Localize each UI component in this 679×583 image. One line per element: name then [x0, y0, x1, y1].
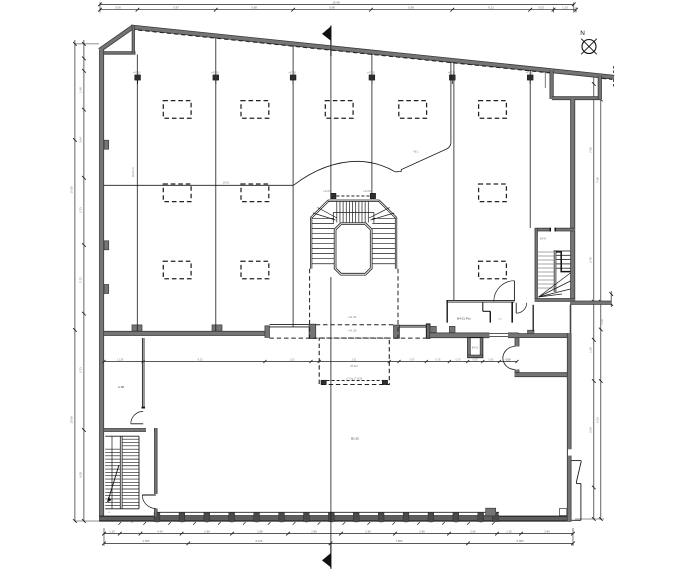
svg-text:2.70: 2.70: [589, 257, 593, 263]
svg-text:0.50: 0.50: [473, 358, 478, 361]
svg-text:+47.50: +47.50: [288, 71, 296, 74]
svg-text:45.1: 45.1: [413, 150, 419, 154]
svg-text:2.88: 2.88: [419, 529, 425, 533]
svg-text:1.38: 1.38: [600, 319, 604, 325]
svg-text:+47.50: +47.50: [367, 71, 375, 74]
svg-text:28.114: 28.114: [350, 365, 358, 368]
svg-text:1.135: 1.135: [117, 358, 124, 361]
svg-text:5.98: 5.98: [329, 6, 335, 10]
svg-text:+41.05: +41.05: [348, 315, 357, 319]
svg-text:+47.50: +47.50: [211, 71, 219, 74]
svg-text:0.97: 0.97: [410, 358, 415, 361]
svg-text:6.23: 6.23: [596, 417, 600, 423]
svg-text:17 Stg 17.6/28: 17 Stg 17.6/28: [346, 377, 363, 380]
svg-text:+47.50: +47.50: [447, 71, 455, 74]
svg-text:5.87: 5.87: [173, 6, 179, 10]
svg-text:5.73: 5.73: [79, 207, 83, 213]
svg-text:1.48: 1.48: [79, 87, 83, 93]
svg-text:6.08: 6.08: [79, 472, 83, 478]
svg-text:5.73: 5.73: [79, 277, 83, 283]
svg-text:2.88: 2.88: [204, 529, 210, 533]
svg-text:6.73: 6.73: [79, 367, 83, 373]
svg-text:5.98: 5.98: [251, 6, 257, 10]
svg-text:3.06: 3.06: [115, 6, 121, 10]
svg-text:0.56: 0.56: [506, 358, 511, 361]
svg-text:6.21: 6.21: [488, 6, 494, 10]
svg-text:2.31: 2.31: [352, 358, 357, 361]
svg-text:+43.50: +43.50: [363, 190, 371, 193]
svg-text:B4.03: B4.03: [472, 347, 479, 350]
svg-text:2.88: 2.88: [311, 529, 317, 533]
svg-text:0.55: 0.55: [489, 358, 494, 361]
svg-text:B4.01 Flur: B4.01 Flur: [457, 317, 471, 321]
svg-text:4.25: 4.25: [198, 358, 203, 361]
svg-text:0.76: 0.76: [436, 358, 441, 361]
svg-text:5.985: 5.985: [517, 539, 524, 543]
svg-text:7.98: 7.98: [596, 177, 600, 183]
svg-text:5.98: 5.98: [408, 6, 414, 10]
svg-text:17.08: 17.08: [70, 186, 74, 194]
svg-text:+41.28: +41.28: [348, 329, 357, 333]
svg-text:B4.04: B4.04: [540, 238, 547, 241]
svg-text:10.98: 10.98: [70, 416, 74, 424]
svg-text:4.44: 4.44: [157, 529, 163, 533]
svg-text:8.125: 8.125: [256, 539, 263, 543]
svg-text:15.48: 15.48: [332, 0, 340, 4]
svg-text:1.26: 1.26: [109, 529, 115, 533]
svg-text:2.88: 2.88: [257, 529, 263, 533]
svg-text:2.60: 2.60: [470, 529, 476, 533]
svg-text:0.70: 0.70: [456, 358, 461, 361]
svg-text:+43.50: +43.50: [323, 190, 331, 193]
svg-text:7.58: 7.58: [589, 147, 593, 153]
svg-text:B1.02: B1.02: [351, 437, 359, 441]
svg-text:A.08: A.08: [118, 385, 125, 389]
svg-text:28.02+21: 28.02+21: [132, 166, 135, 177]
svg-text:3.03: 3.03: [538, 6, 544, 10]
svg-text:2.96: 2.96: [589, 427, 593, 433]
svg-text:2.84: 2.84: [544, 529, 550, 533]
svg-text:+47.50: +47.50: [525, 71, 533, 74]
svg-text:2.88: 2.88: [365, 529, 371, 533]
svg-text:1.53: 1.53: [290, 358, 295, 361]
svg-text:N: N: [580, 30, 585, 37]
svg-text:3.84: 3.84: [79, 137, 83, 143]
svg-text:+47.50: +47.50: [133, 71, 141, 74]
svg-text:18.61: 18.61: [223, 181, 230, 185]
svg-text:1.10: 1.10: [562, 6, 568, 10]
svg-text:4.845: 4.845: [143, 539, 150, 543]
svg-text:7.855: 7.855: [396, 539, 403, 543]
svg-text:1.38: 1.38: [589, 347, 593, 353]
svg-text:1.35: 1.35: [506, 529, 512, 533]
